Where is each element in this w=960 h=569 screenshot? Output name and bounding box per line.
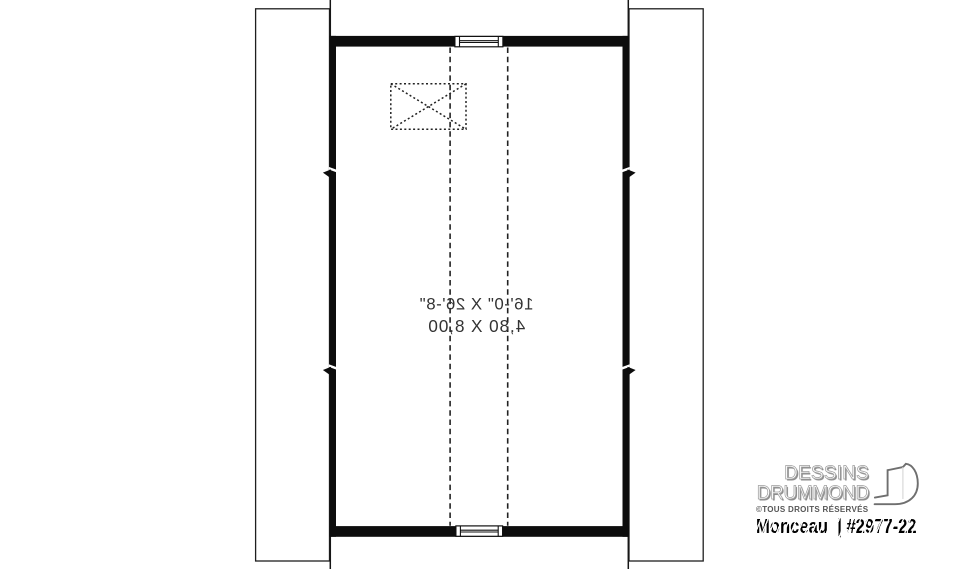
- svg-text:16'-0" X 26'-8": 16'-0" X 26'-8": [419, 294, 533, 313]
- svg-text:4,80 X 8,00: 4,80 X 8,00: [427, 316, 525, 336]
